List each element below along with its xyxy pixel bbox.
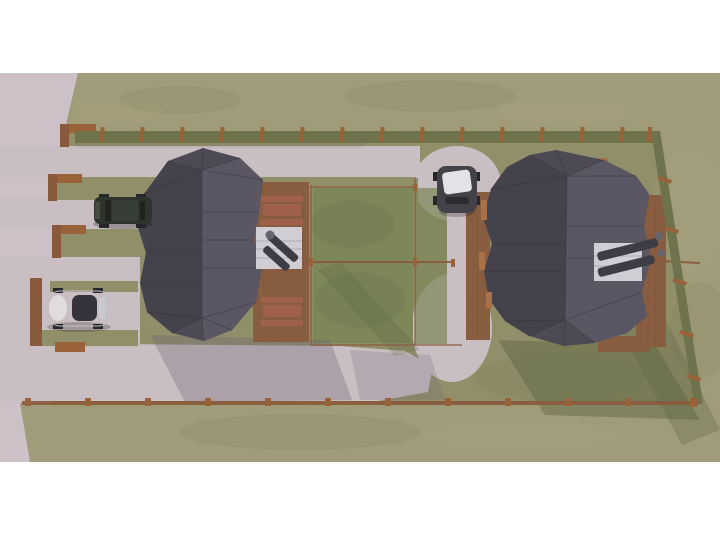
- texture-overlay: [0, 73, 720, 462]
- aerial-scene: [0, 0, 720, 540]
- render-canvas: [0, 0, 720, 540]
